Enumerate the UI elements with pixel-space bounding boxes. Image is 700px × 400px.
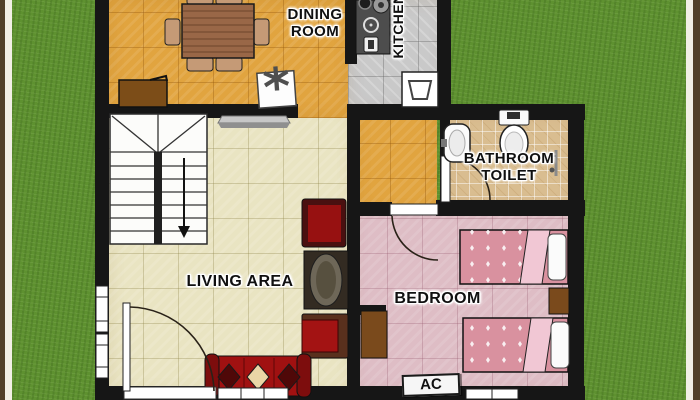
staircase — [110, 114, 207, 244]
window — [96, 286, 108, 332]
sideboard — [119, 80, 167, 107]
bathroom-label-line2: TOILET — [481, 167, 536, 184]
door-swing-arc — [392, 216, 438, 260]
nightstand — [549, 288, 569, 314]
kitchen-counter — [356, 0, 390, 54]
bed-pillow — [551, 322, 569, 368]
bedroom-door — [390, 204, 438, 260]
furniture-layer: * — [0, 0, 700, 400]
wall-shelf — [218, 116, 290, 128]
dining-set — [165, 0, 269, 71]
dining-chair — [254, 19, 269, 45]
door-leaf — [390, 204, 438, 215]
door-leaf — [123, 303, 130, 391]
bedroom-window — [466, 389, 518, 399]
bed — [463, 318, 569, 372]
laundry-basin-box — [402, 72, 438, 107]
stove-burner-icon — [359, 0, 371, 9]
bathroom-label: BATHROOM TOILET — [450, 150, 568, 184]
dining-room-label-line2: ROOM — [291, 23, 339, 40]
dining-chair — [165, 19, 180, 45]
dining-chair — [216, 57, 242, 71]
window — [96, 334, 108, 378]
basin-icon — [409, 81, 431, 99]
dining-room-label-line1: DINING — [288, 6, 343, 23]
dining-chair — [187, 57, 213, 71]
wardrobe — [361, 311, 387, 358]
living-area-label: LIVING AREA — [155, 273, 325, 290]
armchair — [302, 314, 348, 358]
door-swing-arc — [130, 307, 214, 391]
door-leaf — [441, 156, 450, 202]
window — [218, 388, 288, 399]
floorplan-image: * — [0, 0, 700, 400]
ac-unit-label: AC — [402, 373, 461, 397]
bedroom-label: BEDROOM — [380, 290, 495, 307]
accent-chair — [302, 199, 346, 247]
bathroom-label-line1: BATHROOM — [464, 150, 554, 167]
stair-divider — [154, 152, 162, 244]
kitchen-label: KITCHEN — [390, 0, 407, 70]
fan-asterisk-icon: * — [261, 57, 292, 119]
air-cooler-box: * — [256, 57, 297, 119]
bed-pillow — [548, 234, 566, 280]
dining-room-label: DINING ROOM — [280, 6, 350, 40]
entrance-door — [123, 303, 216, 399]
bed — [460, 230, 568, 284]
dining-table — [182, 4, 254, 58]
